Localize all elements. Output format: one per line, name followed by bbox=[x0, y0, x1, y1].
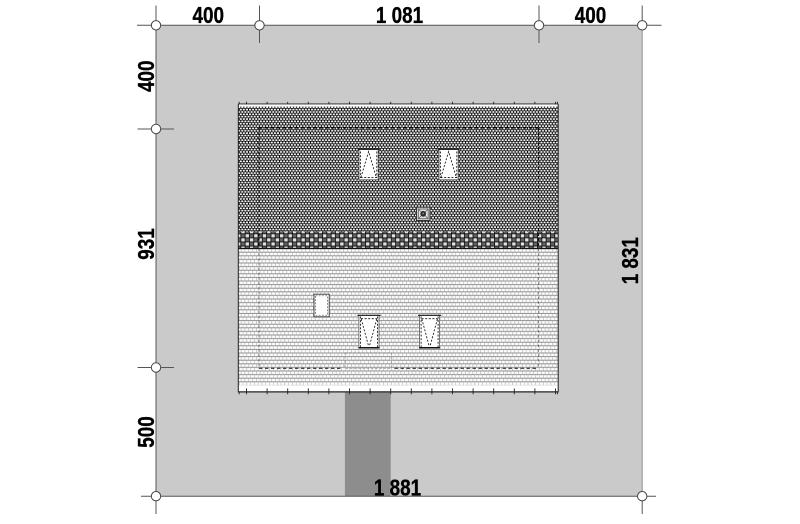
svg-text:400: 400 bbox=[134, 60, 159, 91]
svg-text:1 081: 1 081 bbox=[376, 3, 423, 28]
svg-text:400: 400 bbox=[575, 3, 606, 28]
svg-text:1 881: 1 881 bbox=[374, 476, 421, 501]
svg-text:1 831: 1 831 bbox=[618, 237, 643, 284]
svg-text:500: 500 bbox=[134, 416, 159, 447]
svg-text:931: 931 bbox=[134, 228, 159, 260]
svg-text:400: 400 bbox=[192, 3, 223, 28]
